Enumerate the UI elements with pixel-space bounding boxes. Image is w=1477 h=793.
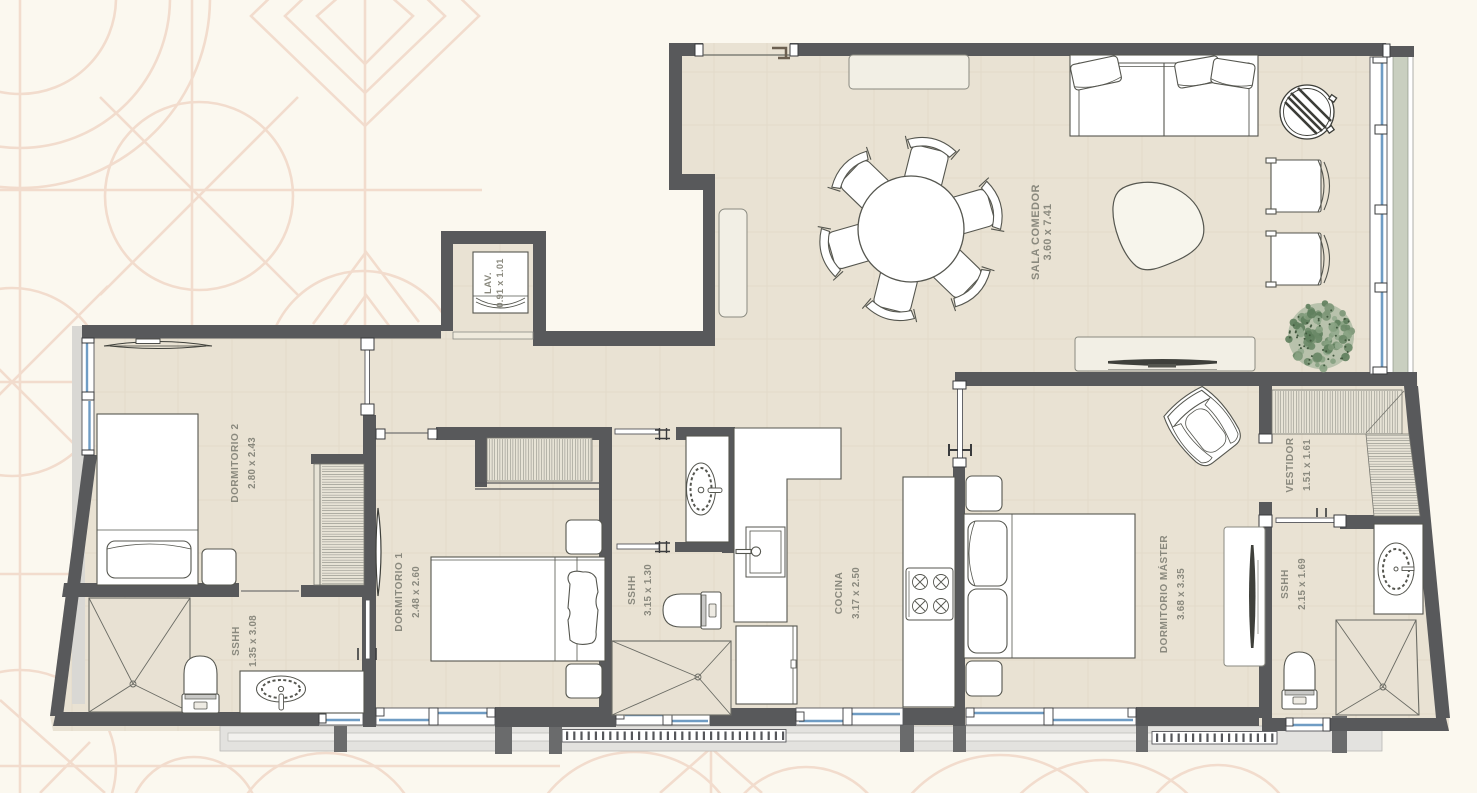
svg-text:1.51 x 1.61: 1.51 x 1.61 [1302,439,1313,491]
svg-text:2.15 x 1.69: 2.15 x 1.69 [1297,558,1308,610]
svg-text:COCINA: COCINA [834,572,845,614]
svg-text:SSHH: SSHH [1280,569,1291,599]
svg-text:SSHH: SSHH [627,575,638,605]
svg-text:LAV.: LAV. [483,272,494,294]
svg-text:3.15 x 1.30: 3.15 x 1.30 [643,564,654,616]
svg-text:DORMITORIO 2: DORMITORIO 2 [230,423,241,502]
svg-text:3.68 x 3.35: 3.68 x 3.35 [1176,568,1187,620]
svg-text:0.91 x 1.01: 0.91 x 1.01 [495,258,505,307]
svg-text:SALA COMEDOR: SALA COMEDOR [1030,184,1042,280]
svg-text:1.35 x 3.08: 1.35 x 3.08 [248,615,259,667]
svg-text:3.60 x 7.41: 3.60 x 7.41 [1042,204,1054,261]
svg-text:SSHH: SSHH [231,626,242,656]
svg-text:VESTIDOR: VESTIDOR [1285,437,1296,492]
svg-text:DORMITORIO MÁSTER: DORMITORIO MÁSTER [1157,535,1170,654]
svg-text:3.17 x 2.50: 3.17 x 2.50 [851,567,862,619]
svg-text:DORMITORIO 1: DORMITORIO 1 [394,552,405,631]
svg-text:2.80 x 2.43: 2.80 x 2.43 [247,437,258,489]
svg-text:2.48 x 2.60: 2.48 x 2.60 [411,566,422,618]
